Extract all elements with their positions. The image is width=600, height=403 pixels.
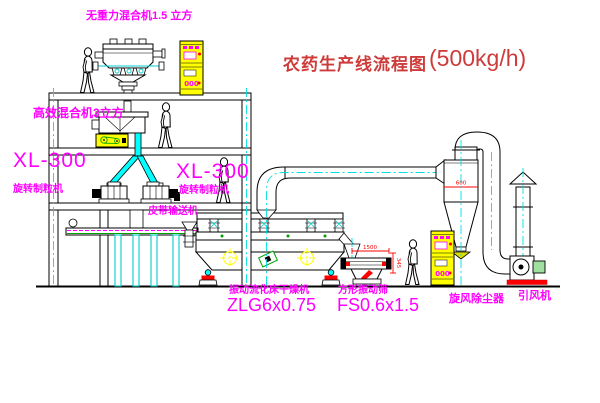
dryer-top-stubs <box>208 219 345 232</box>
label-cyclone: 旋风除尘器 <box>449 294 504 306</box>
sieve-dim-height: 345 <box>390 253 401 273</box>
label-sieve-model: FS0.6x1.5 <box>337 296 419 315</box>
label-granulator-mid-name: 旋转制粒机 <box>179 186 229 197</box>
control-cabinet-2: 000 <box>431 231 454 285</box>
label-fan: 引风机 <box>518 291 551 303</box>
label-dryer-model: ZLG6x0.75 <box>227 296 316 315</box>
person-figure-2 <box>159 103 173 148</box>
granulator-left <box>92 182 129 203</box>
drawing-canvas: 000 <box>0 0 600 403</box>
label-gravity-mixer: 无重力混合机1.5 立方 <box>86 11 192 23</box>
dryer-foot-right <box>322 270 340 285</box>
control-cabinet-1: 000 <box>180 41 203 95</box>
title-capacity: (500kg/h) <box>429 45 526 72</box>
label-granulator-left-name: 旋转制粒机 <box>13 185 63 196</box>
dryer-foot-left <box>199 270 217 285</box>
y-splitter-chute <box>107 156 163 186</box>
cabinet-display: 000 <box>184 80 199 88</box>
label-high-eff-mixer: 高效混合机3立方 <box>33 107 124 120</box>
square-vibrating-sieve: 1500 345 <box>341 238 401 284</box>
svg-text:1500: 1500 <box>363 245 377 251</box>
label-granulator-mid-model: XL-300 <box>176 161 250 183</box>
page-title: 农药生产线流程图 (500kg/h) <box>283 45 526 75</box>
person-figure-1 <box>81 48 95 93</box>
svg-text:345: 345 <box>395 258 401 269</box>
person-figure-4 <box>406 240 420 285</box>
label-granulator-left-model: XL-300 <box>13 150 87 172</box>
gravity-mixer <box>93 39 165 93</box>
cabinet-display: 000 <box>435 270 450 278</box>
label-belt-conveyor: 皮带输送机 <box>148 207 198 218</box>
title-text: 农药生产线流程图 <box>283 45 427 75</box>
belt-conveyor <box>66 210 198 286</box>
induced-draft-fan <box>507 256 547 285</box>
fluid-bed-dryer <box>182 213 355 285</box>
